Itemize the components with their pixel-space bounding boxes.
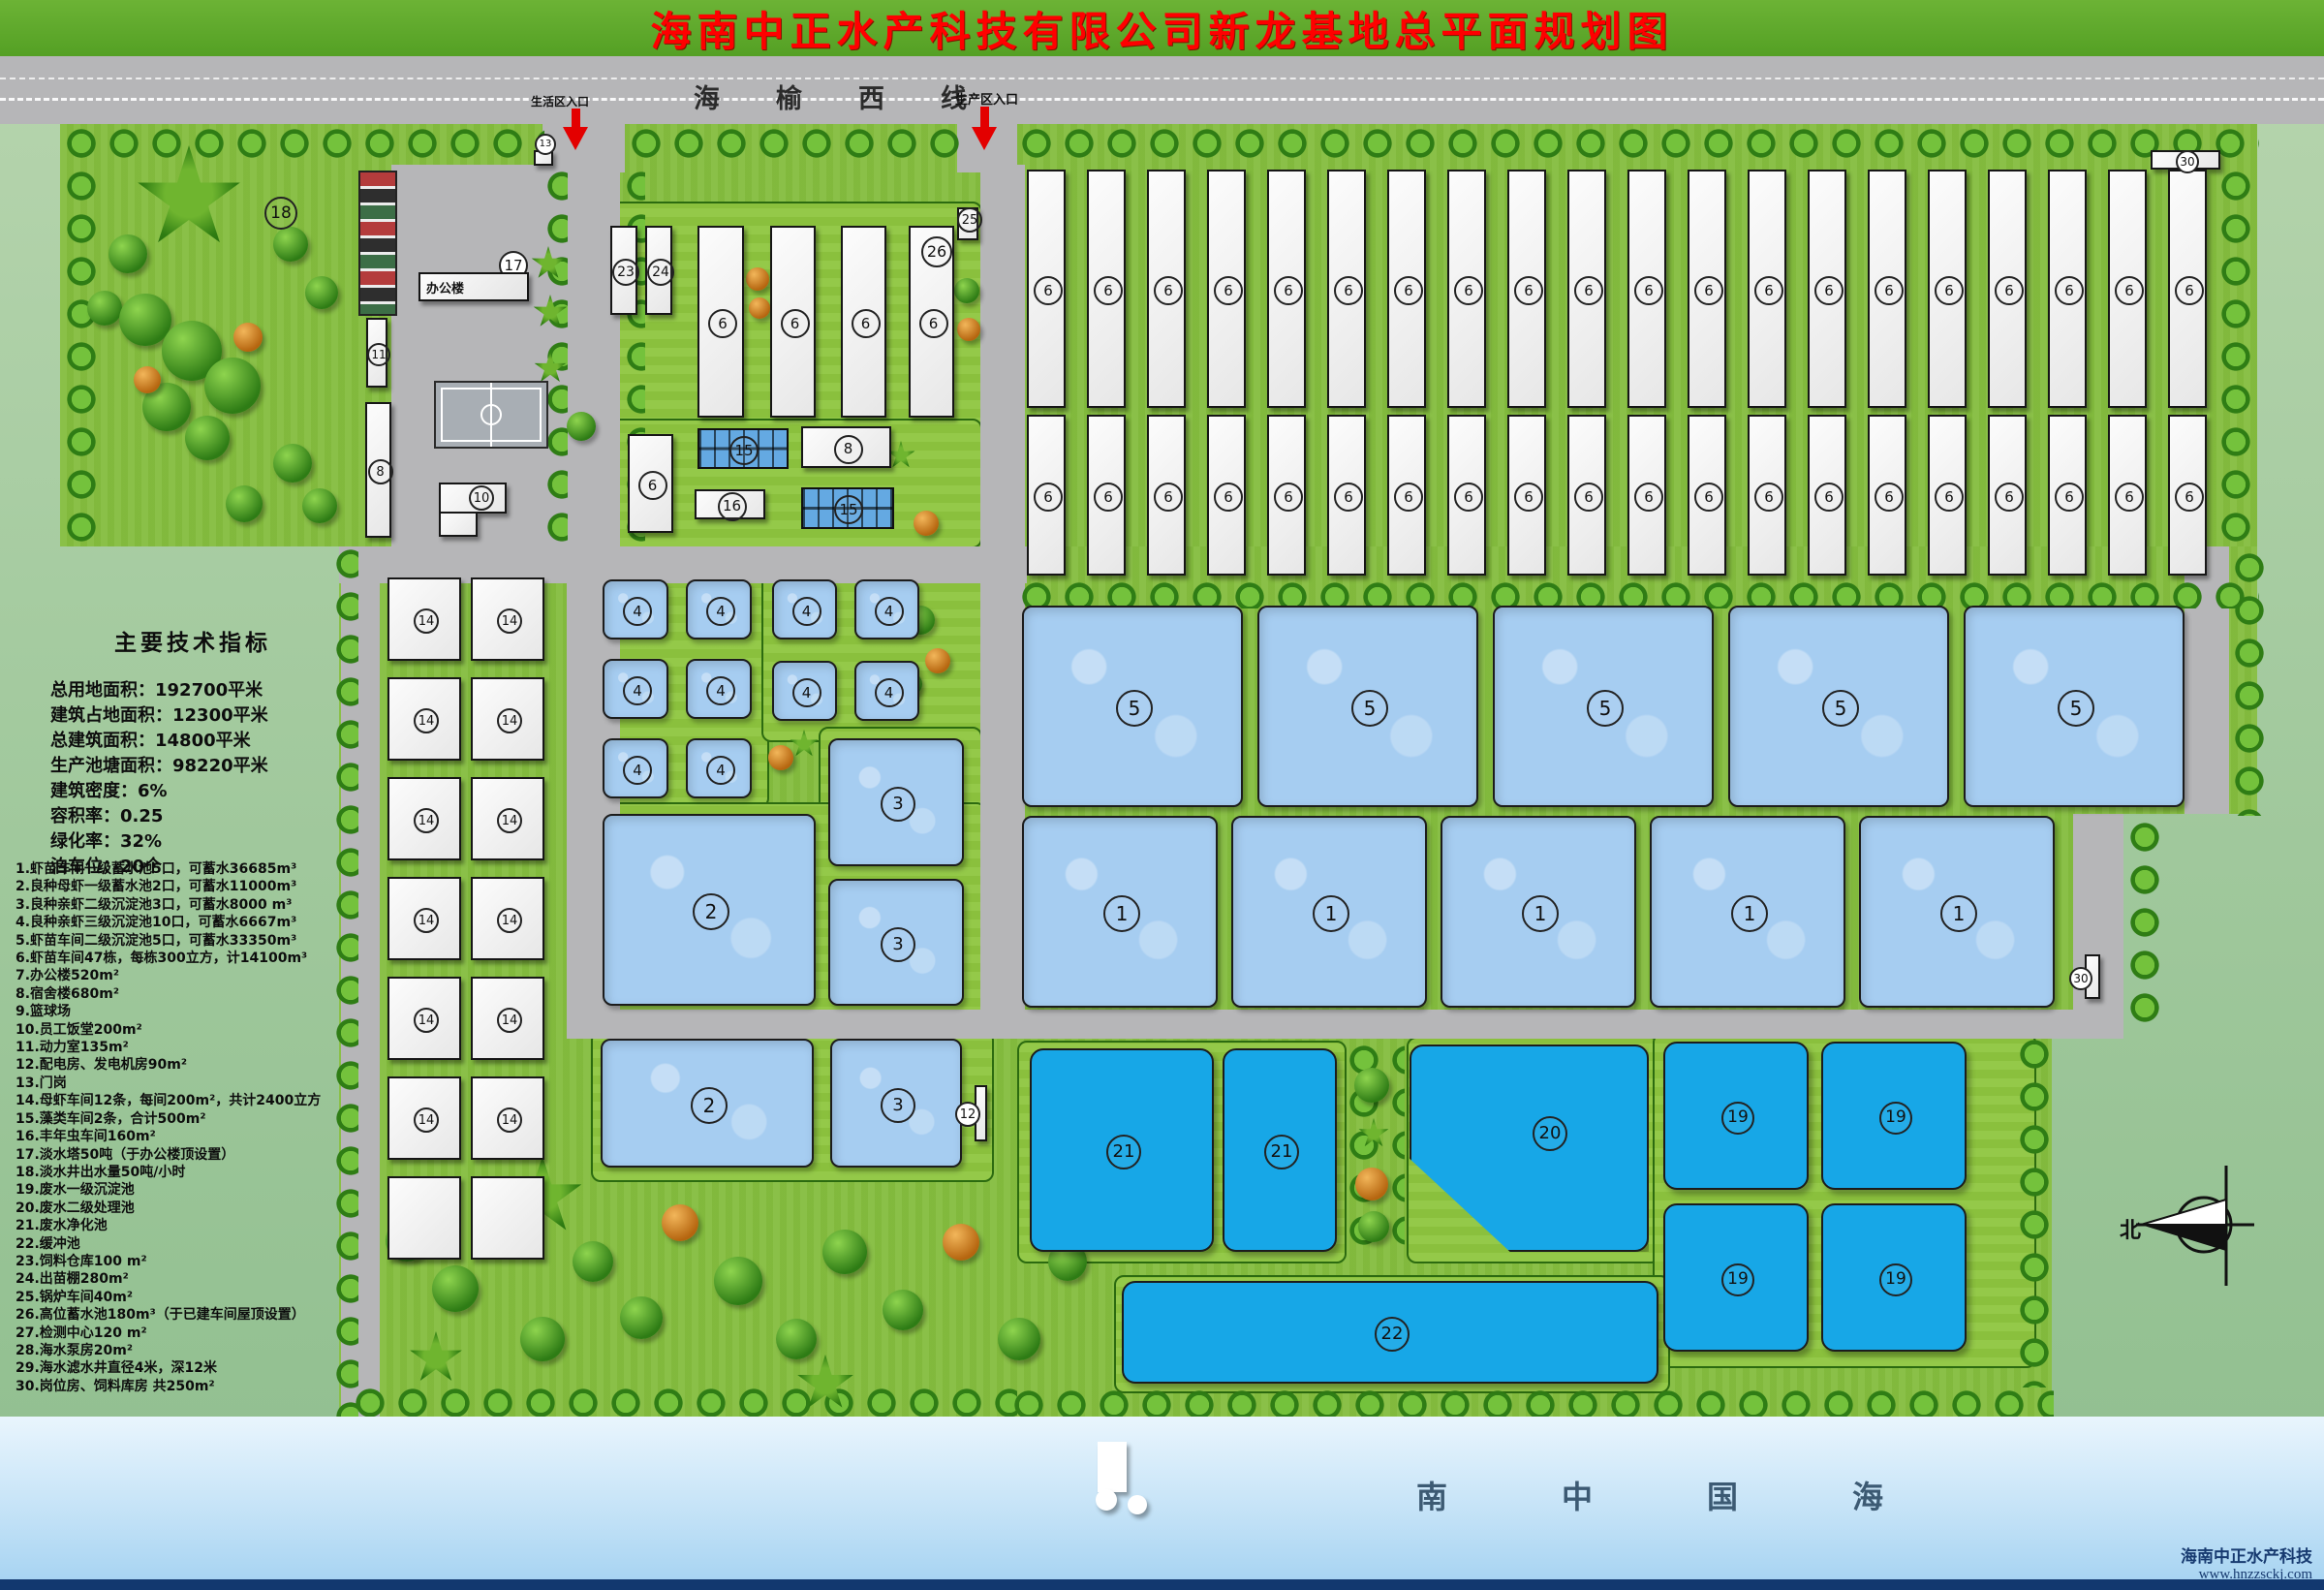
tree-hedge: [60, 122, 544, 167]
legend-item: 17.淡水塔50吨（于办公楼顶设置）: [15, 1146, 350, 1164]
tree: [226, 485, 263, 522]
legend-item: 30.岗位房、饲料库房 共250m²: [15, 1378, 350, 1395]
tree: [883, 1290, 923, 1330]
label-15: 15: [729, 436, 759, 465]
tree: [957, 318, 980, 341]
tree: [134, 366, 161, 393]
tree: [108, 234, 147, 273]
label-6: 6: [852, 309, 881, 338]
indicators-title: 主要技术指标: [114, 624, 370, 657]
label-4: 4: [706, 676, 735, 705]
label-14: 14: [497, 1008, 522, 1033]
legend-item: 9.篮球场: [15, 1003, 350, 1020]
label-6: 6: [1454, 276, 1483, 305]
road-center-line: [0, 98, 2324, 101]
label-4: 4: [875, 597, 904, 626]
label-6: 6: [1634, 483, 1663, 512]
label-6: 6: [1634, 276, 1663, 305]
label-16: 16: [718, 492, 747, 521]
entrance-right-label: 生产区入口: [955, 89, 1018, 108]
label-6: 6: [1094, 276, 1123, 305]
label-10: 10: [469, 485, 494, 511]
label-22: 22: [1375, 1317, 1410, 1352]
label-6: 6: [2115, 276, 2144, 305]
label-6: 6: [1814, 276, 1844, 305]
label-6: 6: [1935, 276, 1964, 305]
label-14: 14: [414, 708, 439, 733]
tree-hedge: [625, 122, 959, 167]
label-6: 6: [1154, 483, 1183, 512]
indicators-lines: 总用地面积：192700平米建筑占地面积：12300平米总建筑面积：14800平…: [50, 678, 370, 880]
label-6: 6: [2115, 483, 2144, 512]
label-6: 6: [1875, 276, 1904, 305]
tree-hedge: [541, 165, 568, 546]
label-1: 1: [1940, 895, 1977, 932]
label-12: 12: [955, 1102, 980, 1127]
label-6: 6: [2055, 483, 2084, 512]
label-25: 25: [957, 207, 982, 233]
indicator-line: 生产池塘面积：98220平米: [50, 754, 370, 779]
tree: [273, 444, 312, 483]
label-5: 5: [1587, 690, 1624, 727]
legend-item: 7.办公楼520m²: [15, 967, 350, 984]
tree: [776, 1319, 817, 1359]
label-6: 6: [1334, 483, 1363, 512]
legend-item: 16.丰年虫车间160m²: [15, 1128, 350, 1145]
road: [0, 56, 2324, 124]
tree: [768, 745, 793, 770]
tree: [573, 1241, 613, 1282]
label-6: 6: [1274, 483, 1303, 512]
label-2: 2: [693, 893, 729, 930]
label-6: 6: [1034, 483, 1063, 512]
entrance-right-arrow: [980, 107, 989, 128]
label-15: 15: [834, 495, 863, 524]
label-26: 26: [921, 236, 952, 267]
basketball-court: [434, 381, 548, 449]
tree: [998, 1318, 1040, 1360]
label-5: 5: [2058, 690, 2094, 727]
label-24: 24: [647, 259, 674, 286]
tree: [1358, 1211, 1389, 1242]
label-19: 19: [1721, 1102, 1754, 1135]
label-18: 18: [264, 197, 297, 230]
label-4: 4: [792, 678, 821, 707]
indicator-line: 总用地面积：192700平米: [50, 678, 370, 703]
legend-item: 25.锅炉车间40m²: [15, 1289, 350, 1306]
label-6: 6: [1574, 276, 1603, 305]
legend-item: 11.动力室135m²: [15, 1039, 350, 1056]
legend-item: 18.淡水井出水量50吨/小时: [15, 1164, 350, 1181]
tree: [954, 278, 979, 303]
label-30: 30: [2176, 150, 2199, 173]
label-14: 14: [414, 908, 439, 933]
sea-label: 南中国海: [1416, 1473, 1998, 1517]
road-lane-line: [0, 78, 2324, 79]
label-19: 19: [1879, 1102, 1912, 1135]
watermark-company: 海南中正水产科技: [2181, 1543, 2312, 1567]
legend-item: 8.宿舍楼680m²: [15, 985, 350, 1003]
label-4: 4: [623, 676, 652, 705]
tree: [662, 1204, 698, 1241]
label-14: 14: [497, 808, 522, 833]
tree: [943, 1224, 979, 1261]
label-19: 19: [1879, 1263, 1912, 1296]
tree: [185, 416, 230, 460]
label-4: 4: [706, 597, 735, 626]
label-6: 6: [2055, 276, 2084, 305]
tree: [305, 276, 338, 309]
legend-item: 12.配电房、发电机房90m²: [15, 1056, 350, 1074]
legend-item: 29.海水滤水井直径4米，深12米: [15, 1359, 350, 1377]
label-5: 5: [1116, 690, 1153, 727]
legend-item: 15.藻类车间2条，合计500m²: [15, 1110, 350, 1128]
title-bar: 海南中正水产科技有限公司新龙基地总平面规划图: [0, 0, 2324, 56]
legend-item: 27.检测中心120 m²: [15, 1325, 350, 1342]
label-4: 4: [623, 597, 652, 626]
tree: [749, 297, 770, 319]
tree-hedge: [349, 1382, 1017, 1419]
label-21: 21: [1106, 1135, 1141, 1169]
tree: [822, 1230, 867, 1274]
legend-item: 1.虾苗车间一级蓄水池5口，可蓄水36685m³: [15, 860, 350, 878]
label-6: 6: [1514, 276, 1543, 305]
indicator-line: 建筑密度：6%: [50, 779, 370, 804]
watermark: 海南中正水产科技 www.hnzzsckj.com: [2181, 1543, 2312, 1583]
legend-item: 10.员工饭堂200m²: [15, 1021, 350, 1039]
label-4: 4: [875, 678, 904, 707]
label-6: 6: [1514, 483, 1543, 512]
label-20: 20: [1533, 1116, 1567, 1151]
label-6: 6: [1154, 276, 1183, 305]
site-plan: 3232321212022444444444419191919555551111…: [0, 0, 2324, 1590]
label-1: 1: [1522, 895, 1559, 932]
label-6: 6: [1754, 276, 1783, 305]
office-label: 办公楼: [426, 278, 464, 296]
label-4: 4: [623, 756, 652, 785]
label-19: 19: [1721, 1263, 1754, 1296]
label-5: 5: [1822, 690, 1859, 727]
tree: [925, 648, 950, 673]
label-23: 23: [612, 259, 639, 286]
label-6: 6: [1034, 276, 1063, 305]
legend-item: 24.出苗棚280m²: [15, 1270, 350, 1288]
label-14: 14: [414, 1107, 439, 1133]
label-14: 14: [497, 1107, 522, 1133]
label-6: 6: [1754, 483, 1783, 512]
entrance-left-arrow: [572, 109, 580, 128]
seawater-filter-well: [1128, 1495, 1147, 1514]
label-4: 4: [792, 597, 821, 626]
road: [2073, 814, 2123, 1032]
label-6: 6: [2175, 483, 2204, 512]
legend-item: 21.废水净化池: [15, 1217, 350, 1234]
seawater-filter-well: [1096, 1489, 1117, 1511]
label-14: 14: [414, 1008, 439, 1033]
label-5: 5: [1351, 690, 1388, 727]
tree-hedge: [2123, 816, 2162, 1033]
entrance-left-label: 生活区入口: [531, 93, 589, 109]
tree-hedge: [60, 122, 105, 548]
label-1: 1: [1103, 895, 1140, 932]
tree-hedge: [2215, 165, 2257, 552]
indicator-line: 建筑占地面积：12300平米: [50, 703, 370, 729]
legend-item: 3.良种亲虾二级沉淀池3口，可蓄水8000 m³: [15, 896, 350, 914]
label-6: 6: [1454, 483, 1483, 512]
label-6: 6: [1694, 276, 1723, 305]
building-: [471, 1176, 544, 1260]
label-6: 6: [1334, 276, 1363, 305]
label-6: 6: [1274, 276, 1303, 305]
label-6: 6: [1574, 483, 1603, 512]
legend-item: 14.母虾车间12条，每间200m²，共计2400立方: [15, 1092, 350, 1109]
entrance-right-arrow-head: [972, 127, 997, 150]
tree-hedge: [1015, 576, 2259, 608]
indicator-line: 绿化率：32%: [50, 829, 370, 855]
label-6: 6: [1935, 483, 1964, 512]
tree: [87, 291, 122, 326]
legend-item: 2.良种母虾一级蓄水池2口，可蓄水11000m³: [15, 878, 350, 895]
tree-hedge: [1007, 1384, 2054, 1419]
tree: [432, 1265, 479, 1312]
legend-item: 13.门岗: [15, 1075, 350, 1092]
label-8: 8: [368, 459, 393, 484]
label-3: 3: [881, 927, 915, 962]
legend-item: 28.海水泵房20m²: [15, 1342, 350, 1359]
label-3: 3: [881, 1088, 915, 1123]
label-21: 21: [1264, 1135, 1299, 1169]
indicators-panel: 主要技术指标 总用地面积：192700平米建筑占地面积：12300平米总建筑面积…: [50, 624, 370, 880]
tree-hedge: [2013, 1033, 2052, 1387]
label-14: 14: [497, 708, 522, 733]
parking-strip: [358, 171, 397, 316]
label-6: 6: [708, 309, 737, 338]
legend-item: 20.废水二级处理池: [15, 1200, 350, 1217]
label-14: 14: [497, 908, 522, 933]
legend-item: 23.饲料仓库100 m²: [15, 1253, 350, 1270]
tree: [302, 488, 337, 523]
label-6: 6: [1214, 483, 1243, 512]
label-14: 14: [414, 608, 439, 634]
label-6: 6: [1995, 276, 2024, 305]
legend-item: 6.虾苗车间47栋，每栋300立方，计14100m³: [15, 950, 350, 967]
label-6: 6: [2175, 276, 2204, 305]
tree: [1354, 1068, 1389, 1103]
building-: [439, 512, 478, 537]
tree-hedge: [1015, 122, 2259, 167]
entrance-left-arrow-head: [563, 127, 588, 150]
label-6: 6: [1394, 276, 1423, 305]
label-6: 6: [1814, 483, 1844, 512]
label-2: 2: [691, 1087, 728, 1124]
tree: [204, 358, 261, 414]
tree: [1355, 1168, 1388, 1200]
tree: [620, 1296, 663, 1339]
tree: [714, 1257, 762, 1305]
legend-item: 19.废水一级沉淀池: [15, 1181, 350, 1199]
page-title: 海南中正水产科技有限公司新龙基地总平面规划图: [650, 0, 1673, 58]
tree: [746, 267, 769, 291]
label-14: 14: [414, 808, 439, 833]
indicator-line: 总建筑面积：14800平米: [50, 729, 370, 754]
label-6: 6: [781, 309, 810, 338]
label-3: 3: [881, 787, 915, 822]
label-6: 6: [919, 309, 948, 338]
tree: [233, 323, 263, 352]
tree: [567, 412, 596, 441]
legend-item: 26.高位蓄水池180m³（于已建车间屋顶设置）: [15, 1306, 350, 1324]
label-6: 6: [1214, 276, 1243, 305]
watermark-url: www.hnzzsckj.com: [2181, 1567, 2312, 1583]
legend-item: 5.虾苗车间二级沉淀池5口，可蓄水33350m³: [15, 932, 350, 950]
seawater-pump-house: [1098, 1442, 1127, 1492]
label-1: 1: [1313, 895, 1349, 932]
tree: [273, 227, 308, 262]
compass-north-label: 北: [2120, 1213, 2141, 1244]
label-13: 13: [535, 134, 556, 155]
legend-panel: 1.虾苗车间一级蓄水池5口，可蓄水36685m³2.良种母虾一级蓄水池2口，可蓄…: [15, 860, 350, 1395]
label-6: 6: [1094, 483, 1123, 512]
label-1: 1: [1731, 895, 1768, 932]
road: [591, 1010, 2123, 1039]
label-8: 8: [834, 435, 863, 464]
label-6: 6: [1995, 483, 2024, 512]
label-6: 6: [638, 471, 667, 500]
label-6: 6: [1394, 483, 1423, 512]
label-4: 4: [706, 756, 735, 785]
label-14: 14: [497, 608, 522, 634]
label-11: 11: [367, 343, 390, 366]
tree: [914, 511, 939, 536]
bottom-bar: [0, 1579, 2324, 1590]
label-6: 6: [1875, 483, 1904, 512]
legend-item: 22.缓冲池: [15, 1235, 350, 1253]
label-30: 30: [2069, 967, 2092, 990]
legend-item: 4.良种亲虾三级沉淀池10口，可蓄水6667m³: [15, 914, 350, 931]
office-building: 办公楼: [418, 272, 529, 301]
building-: [387, 1176, 461, 1260]
indicator-line: 容积率：0.25: [50, 804, 370, 829]
label-6: 6: [1694, 483, 1723, 512]
tree: [520, 1317, 565, 1361]
